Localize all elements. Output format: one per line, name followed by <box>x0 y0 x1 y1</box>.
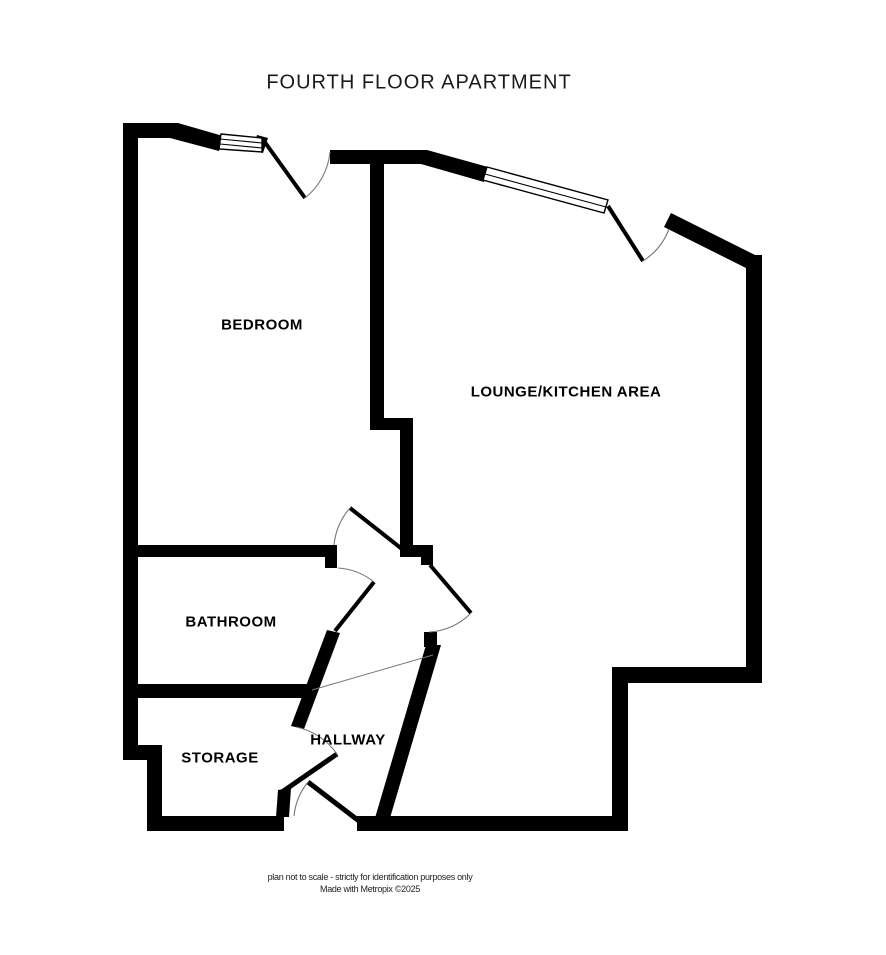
bedroom-balcony-door-leaf <box>264 141 305 198</box>
lounge-door-arc <box>429 613 471 632</box>
footer-credit: Made with Metropix ©2025 <box>320 884 420 894</box>
wall-bedroom-lounge-divider <box>370 164 433 565</box>
room-label-bedroom: BEDROOM <box>221 317 303 334</box>
wall-topright-diagonal <box>664 213 757 270</box>
floorplan-page: FOURTH FLOOR APARTMENT BEDROOM LOUNGE/KI… <box>0 0 886 955</box>
bedroom-window <box>219 134 262 152</box>
room-label-bathroom: BATHROOM <box>185 614 276 631</box>
bedroom-door-leaf <box>350 508 402 549</box>
lounge-top-door-arc <box>643 229 669 261</box>
doors <box>264 141 669 821</box>
entrance-door-leaf <box>308 782 359 821</box>
bathroom-door <box>335 568 374 631</box>
walls <box>123 123 762 831</box>
bathroom-door-leaf <box>335 582 374 631</box>
wall-right-exterior <box>357 255 762 831</box>
wall-bathroom-top <box>128 545 337 568</box>
entrance-door <box>294 782 359 821</box>
windows <box>219 134 608 213</box>
room-label-lounge-kitchen: LOUNGE/KITCHEN AREA <box>471 384 662 401</box>
lounge-door-leaf <box>430 565 471 613</box>
lounge-window <box>483 167 608 213</box>
bedroom-balcony-door <box>264 141 330 198</box>
wall-bathroom-diagonal <box>291 630 340 729</box>
storage-door-leaf <box>282 754 337 792</box>
page-title: FOURTH FLOOR APARTMENT <box>266 72 571 95</box>
wall-lounge-door-jamb <box>424 632 437 647</box>
bedroom-door-arc <box>334 508 350 545</box>
bathroom-door-arc <box>338 568 374 582</box>
bedroom-balcony-door-arc <box>305 152 330 198</box>
wall-lounge-top <box>330 150 488 182</box>
footer-disclaimer: plan not to scale - strictly for identif… <box>268 872 473 882</box>
wall-left-exterior <box>123 123 284 831</box>
room-label-storage: STORAGE <box>181 750 258 767</box>
lounge-top-door <box>608 206 669 261</box>
room-label-hallway: HALLWAY <box>310 732 385 749</box>
bedroom-door <box>334 508 402 549</box>
wall-storage-top <box>138 684 309 698</box>
entrance-door-arc <box>294 782 308 816</box>
lounge-door <box>429 565 471 632</box>
floorplan-drawing <box>0 0 886 955</box>
lounge-top-door-leaf <box>608 206 643 261</box>
